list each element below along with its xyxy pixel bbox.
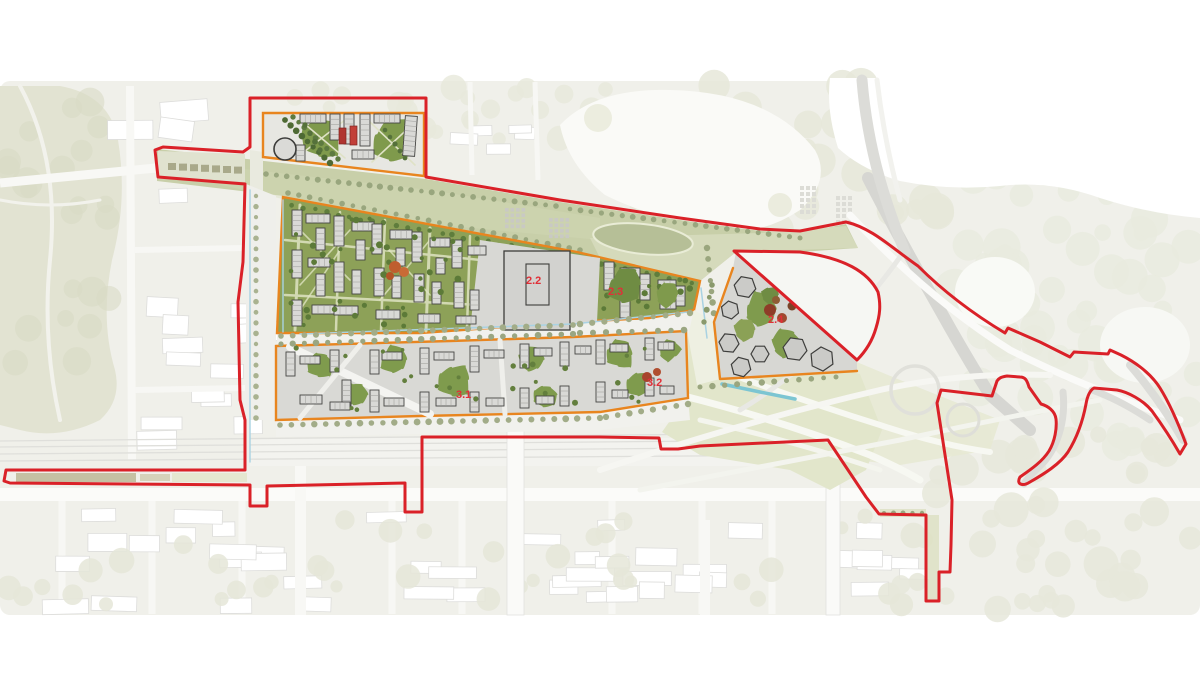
svg-text:2.4: 2.4 [768, 314, 784, 326]
svg-text:3.2: 3.2 [647, 377, 662, 389]
svg-text:3.1: 3.1 [456, 389, 471, 401]
svg-text:2.2: 2.2 [526, 275, 541, 287]
svg-text:2.3: 2.3 [608, 286, 623, 298]
